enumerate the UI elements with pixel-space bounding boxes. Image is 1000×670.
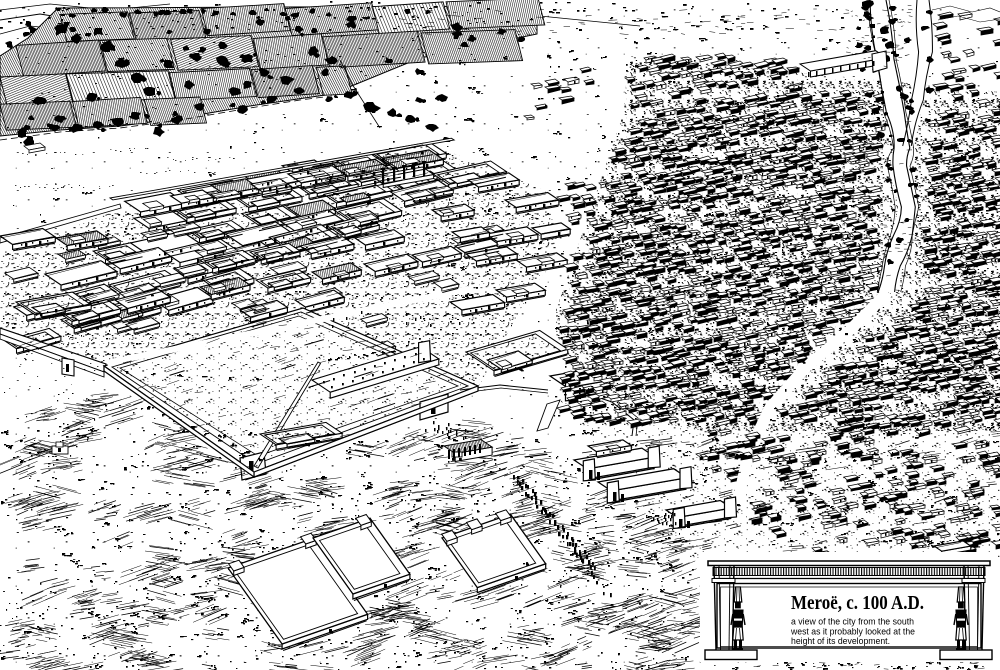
svg-text:a view of the city from the so: a view of the city from the south — [791, 617, 914, 627]
svg-text:height of its development.: height of its development. — [791, 636, 890, 646]
svg-text:Meroë, c. 100 A.D.: Meroë, c. 100 A.D. — [791, 593, 924, 614]
